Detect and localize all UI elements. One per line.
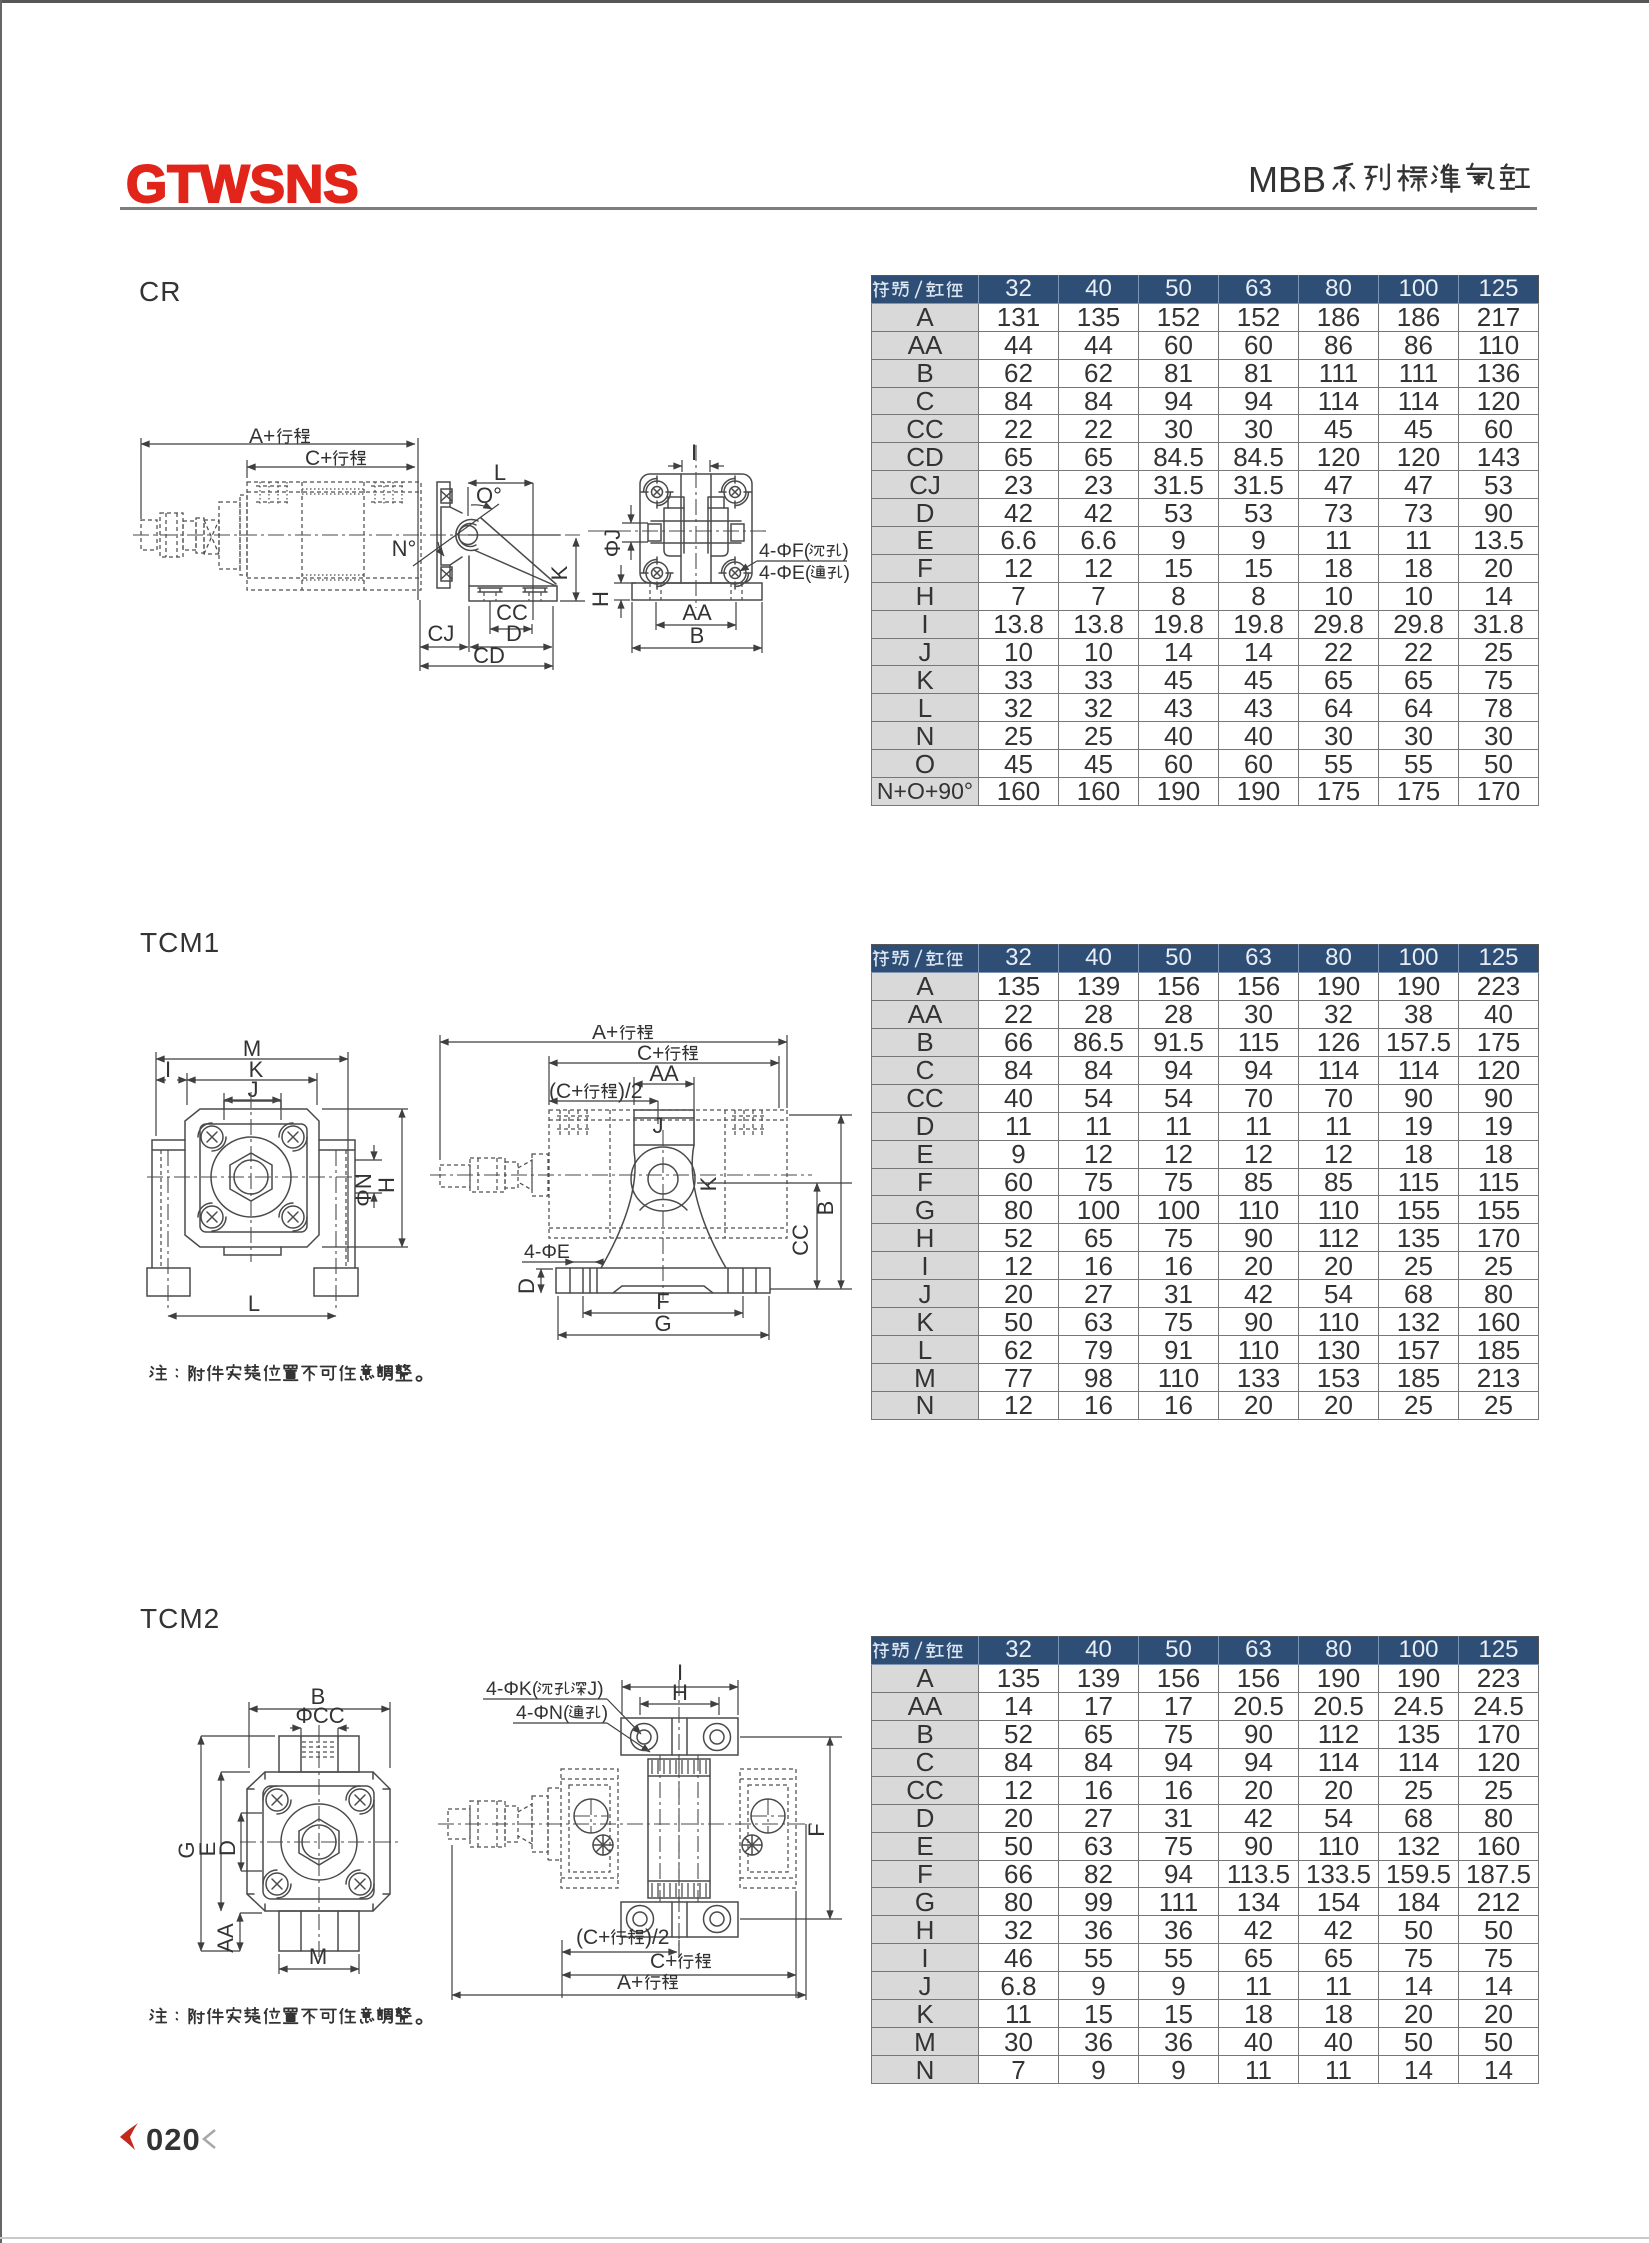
svg-text:): ) xyxy=(602,1702,609,1724)
svg-text:MBB: MBB xyxy=(1248,159,1326,200)
svg-text:AA: AA xyxy=(213,1923,238,1953)
svg-text:B: B xyxy=(813,1201,838,1216)
svg-text:4-ΦF(: 4-ΦF( xyxy=(759,540,811,562)
svg-text:H: H xyxy=(672,1680,688,1705)
svg-text:): ) xyxy=(842,540,849,562)
svg-text:)/2: )/2 xyxy=(618,1080,643,1103)
svg-text:4-ΦE: 4-ΦE xyxy=(524,1241,570,1263)
svg-text:D: D xyxy=(506,621,522,646)
svg-text:L: L xyxy=(248,1291,260,1316)
svg-text:4-ΦK(: 4-ΦK( xyxy=(486,1678,539,1700)
svg-text:M: M xyxy=(309,1944,327,1969)
svg-text:A+: A+ xyxy=(617,1971,643,1994)
svg-text:F: F xyxy=(804,1823,829,1836)
svg-text:D: D xyxy=(514,1278,539,1294)
svg-text:CD: CD xyxy=(473,643,505,668)
svg-text:B: B xyxy=(690,623,705,648)
svg-text:L: L xyxy=(494,460,506,485)
svg-text:J: J xyxy=(653,1113,664,1138)
svg-text:ΦCC: ΦCC xyxy=(295,1703,344,1728)
svg-text:CJ: CJ xyxy=(428,621,455,646)
svg-text:C+: C+ xyxy=(650,1950,677,1973)
svg-text:)/2: )/2 xyxy=(645,1926,670,1949)
svg-text:4-ΦE(: 4-ΦE( xyxy=(759,562,812,584)
svg-text:ΦN: ΦN xyxy=(351,1173,376,1206)
svg-text:(C+: (C+ xyxy=(549,1080,583,1103)
svg-text:K: K xyxy=(696,1176,721,1191)
svg-text:D: D xyxy=(215,1840,240,1856)
svg-text:): ) xyxy=(844,562,851,584)
svg-text:4-ΦN(: 4-ΦN( xyxy=(516,1702,570,1724)
svg-text:A+: A+ xyxy=(592,1025,618,1044)
svg-text:G: G xyxy=(654,1311,671,1336)
svg-text:AA: AA xyxy=(649,1061,679,1086)
svg-text:ΦJ: ΦJ xyxy=(600,529,625,558)
svg-text:H: H xyxy=(588,591,613,607)
svg-text:J: J xyxy=(248,1077,259,1102)
svg-text:AA: AA xyxy=(682,600,712,625)
svg-text:H: H xyxy=(374,1177,399,1193)
svg-text:(C+: (C+ xyxy=(576,1926,610,1949)
svg-text:CC: CC xyxy=(788,1224,813,1256)
svg-text:I: I xyxy=(165,1057,171,1082)
svg-text:J): J) xyxy=(587,1678,603,1700)
svg-text:N°: N° xyxy=(392,536,417,561)
